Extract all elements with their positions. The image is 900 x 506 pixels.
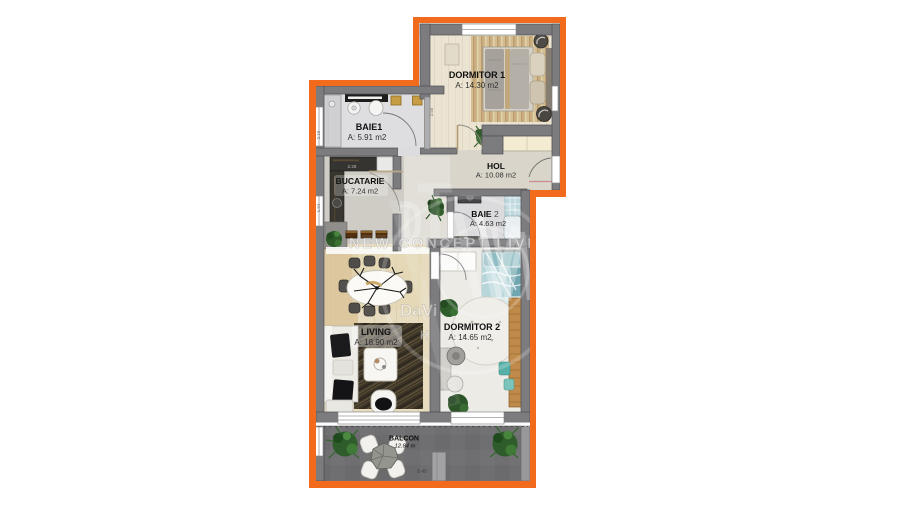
svg-text:BALCON: BALCON: [389, 436, 419, 443]
svg-text:DaVi: DaVi: [400, 301, 438, 320]
svg-text:1.94: 1.94: [316, 203, 321, 212]
svg-text:2.55: 2.55: [429, 107, 434, 116]
svg-text:8.40: 8.40: [417, 469, 427, 475]
svg-text:A: 18.90 m2: A: 18.90 m2: [354, 338, 398, 347]
svg-text:A: 5.91 m2: A: 5.91 m2: [348, 133, 387, 142]
svg-text:A: 7.24 m2: A: 7.24 m2: [342, 187, 378, 196]
svg-text:12.84 m: 12.84 m: [395, 444, 416, 450]
svg-text:A: 14.65 m2: A: 14.65 m2: [448, 333, 492, 342]
svg-text:BUCATARIE: BUCATARIE: [336, 176, 385, 186]
svg-text:H: H: [420, 328, 429, 342]
svg-text:A: 14.30 m2: A: 14.30 m2: [455, 81, 499, 90]
svg-text:DORMITOR 1: DORMITOR 1: [449, 70, 505, 80]
svg-text:A: 4.63 m2: A: 4.63 m2: [470, 219, 506, 228]
svg-text:2.28: 2.28: [348, 164, 357, 169]
svg-text:HOL: HOL: [487, 161, 505, 171]
svg-text:2.16: 2.16: [316, 130, 321, 139]
svg-text:NEW CONCEPT LIVING: NEW CONCEPT LIVING: [349, 235, 562, 252]
svg-text:DORMITOR 2: DORMITOR 2: [444, 322, 500, 332]
svg-text:BAIE 2: BAIE 2: [471, 209, 499, 219]
svg-text:A: 10.08 m2: A: 10.08 m2: [476, 171, 516, 180]
svg-text:BAIE1: BAIE1: [356, 122, 383, 132]
svg-text:LIVING: LIVING: [361, 327, 391, 337]
